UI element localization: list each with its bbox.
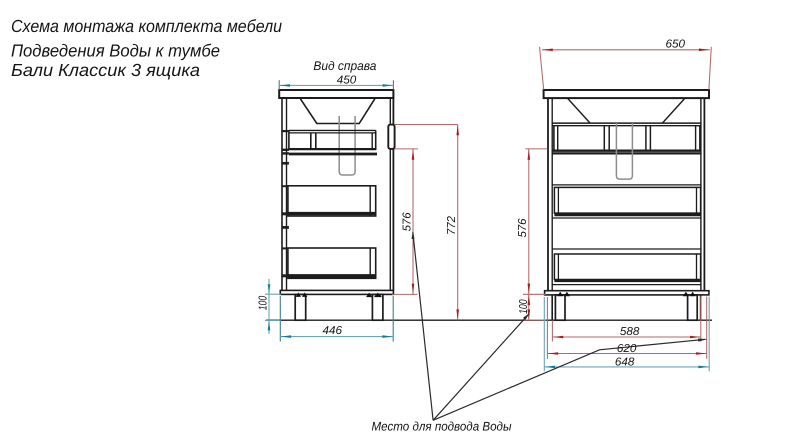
svg-text:620: 620 bbox=[617, 343, 637, 355]
svg-text:588: 588 bbox=[620, 326, 640, 338]
svg-text:772: 772 bbox=[446, 215, 458, 235]
svg-text:446: 446 bbox=[323, 325, 343, 337]
svg-text:Вид справа: Вид справа bbox=[313, 59, 376, 73]
svg-text:Подведения Воды к тумбе: Подведения Воды к тумбе bbox=[11, 41, 220, 61]
svg-text:450: 450 bbox=[337, 75, 357, 87]
svg-text:100: 100 bbox=[518, 299, 530, 314]
svg-text:Схема монтажа комплекта мебели: Схема монтажа комплекта мебели bbox=[11, 16, 282, 36]
svg-text:648: 648 bbox=[615, 357, 635, 369]
svg-text:Бали Классик 3 ящика: Бали Классик 3 ящика bbox=[11, 60, 200, 80]
svg-text:576: 576 bbox=[401, 212, 413, 232]
svg-text:Место для подвода Воды: Место для подвода Воды bbox=[372, 420, 512, 434]
svg-text:576: 576 bbox=[517, 218, 529, 238]
svg-text:100: 100 bbox=[258, 295, 270, 310]
svg-text:650: 650 bbox=[666, 38, 686, 50]
